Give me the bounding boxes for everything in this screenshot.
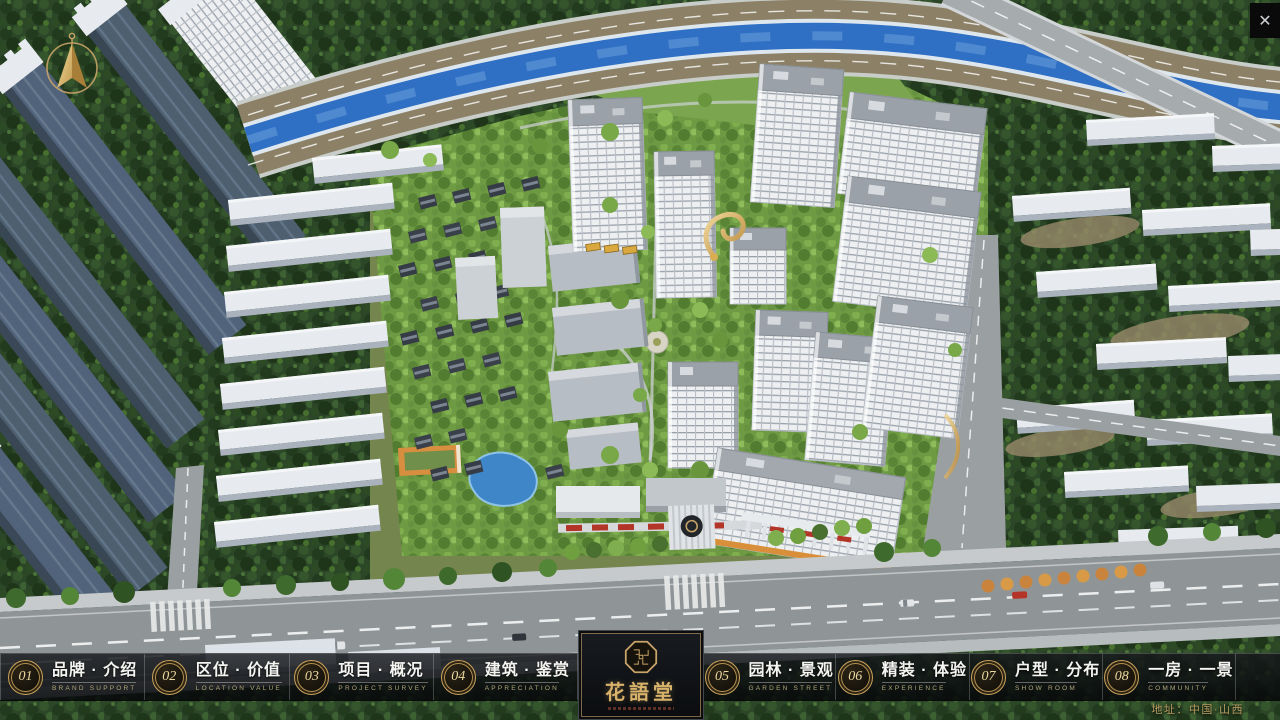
nav-number-badge: 08 <box>1104 660 1139 695</box>
nav-label-zh: 户型 · 分布 <box>1015 662 1100 680</box>
nav-end-spacer <box>1235 654 1280 700</box>
nav-labels: 户型 · 分布 SHOW ROOM <box>1015 662 1100 692</box>
nav-number: 07 <box>982 669 996 685</box>
nav-number-badge: 06 <box>838 660 873 695</box>
nav-number-badge: 05 <box>705 660 740 695</box>
nav-label-en: COMMUNITY <box>1148 682 1208 692</box>
brand-tagline <box>608 707 674 710</box>
nav-number: 05 <box>715 669 729 685</box>
nav-item-location-value[interactable]: 02 区位 · 价值 LOCATION VALUE <box>144 654 288 700</box>
nav-number: 06 <box>848 669 862 685</box>
nav-label-en: LOCATION VALUE <box>196 682 282 692</box>
close-button[interactable]: ✕ <box>1250 3 1280 38</box>
brand-logo[interactable]: 花語堂 <box>578 630 704 720</box>
nav-number-badge: 04 <box>441 660 476 695</box>
nav-label-en: SHOW ROOM <box>1015 682 1077 692</box>
nav-item-brand-intro[interactable]: 01 品牌 · 介绍 BRAND SUPPORT <box>0 654 144 700</box>
nav-labels: 建筑 · 鉴赏 APPRECIATION <box>485 662 570 692</box>
nav-label-en: GARDEN STREET <box>749 682 833 692</box>
nav-number-badge: 02 <box>152 660 187 695</box>
nav-item-garden-landscape[interactable]: 05 园林 · 景观 GARDEN STREET <box>702 654 835 700</box>
entrance-gate <box>668 504 716 550</box>
nav-item-architecture[interactable]: 04 建筑 · 鉴赏 APPRECIATION <box>433 654 578 700</box>
nav-label-zh: 精装 · 体验 <box>882 662 967 680</box>
compass-north-icon <box>42 28 102 100</box>
nav-group-right: 05 园林 · 景观 GARDEN STREET 06 精装 · 体验 EXPE… <box>702 654 1280 700</box>
project-address: 地址：中国·山西 <box>1151 701 1244 717</box>
nav-number-badge: 01 <box>8 660 43 695</box>
nav-label-zh: 品牌 · 介绍 <box>52 662 137 680</box>
nav-labels: 区位 · 价值 LOCATION VALUE <box>196 662 282 692</box>
nav-label-zh: 区位 · 价值 <box>196 662 281 680</box>
sales-presentation-app: ✕ 01 品牌 · 介绍 BRAND SUPPORT 02 区位 · 价值 LO… <box>0 0 1280 720</box>
close-icon: ✕ <box>1258 11 1271 31</box>
nav-number: 01 <box>19 669 33 685</box>
nav-label-zh: 项目 · 概况 <box>338 662 423 680</box>
nav-group-left: 01 品牌 · 介绍 BRAND SUPPORT 02 区位 · 价值 LOCA… <box>0 654 578 700</box>
nav-labels: 品牌 · 介绍 BRAND SUPPORT <box>52 662 137 692</box>
nav-labels: 精装 · 体验 EXPERIENCE <box>882 662 967 692</box>
nav-label-en: EXPERIENCE <box>882 682 946 692</box>
nav-number: 02 <box>162 669 176 685</box>
nav-number: 03 <box>305 669 319 685</box>
nav-label-zh: 建筑 · 鉴赏 <box>485 662 570 680</box>
nav-number: 04 <box>451 669 465 685</box>
nav-item-interior-experience[interactable]: 06 精装 · 体验 EXPERIENCE <box>835 654 968 700</box>
nav-labels: 一房 · 一景 COMMUNITY <box>1148 662 1233 692</box>
nav-number: 08 <box>1115 669 1129 685</box>
nav-item-room-view[interactable]: 08 一房 · 一景 COMMUNITY <box>1102 654 1235 700</box>
nav-label-zh: 园林 · 景观 <box>749 662 834 680</box>
nav-label-en: APPRECIATION <box>485 682 559 692</box>
clubhouse <box>398 445 461 476</box>
nav-label-zh: 一房 · 一景 <box>1148 662 1233 680</box>
brand-name: 花語堂 <box>605 676 677 705</box>
brand-seal-icon <box>624 640 658 674</box>
nav-number-badge: 03 <box>294 660 329 695</box>
nav-label-en: PROJECT SURVEY <box>338 682 427 692</box>
masterplan-render <box>0 0 1280 720</box>
compass <box>42 28 102 105</box>
nav-labels: 项目 · 概况 PROJECT SURVEY <box>338 662 427 692</box>
nav-labels: 园林 · 景观 GARDEN STREET <box>749 662 834 692</box>
nav-item-project-overview[interactable]: 03 项目 · 概况 PROJECT SURVEY <box>289 654 433 700</box>
nav-label-en: BRAND SUPPORT <box>52 682 136 692</box>
nav-item-floorplan-distribution[interactable]: 07 户型 · 分布 SHOW ROOM <box>969 654 1102 700</box>
nav-number-badge: 07 <box>971 660 1006 695</box>
